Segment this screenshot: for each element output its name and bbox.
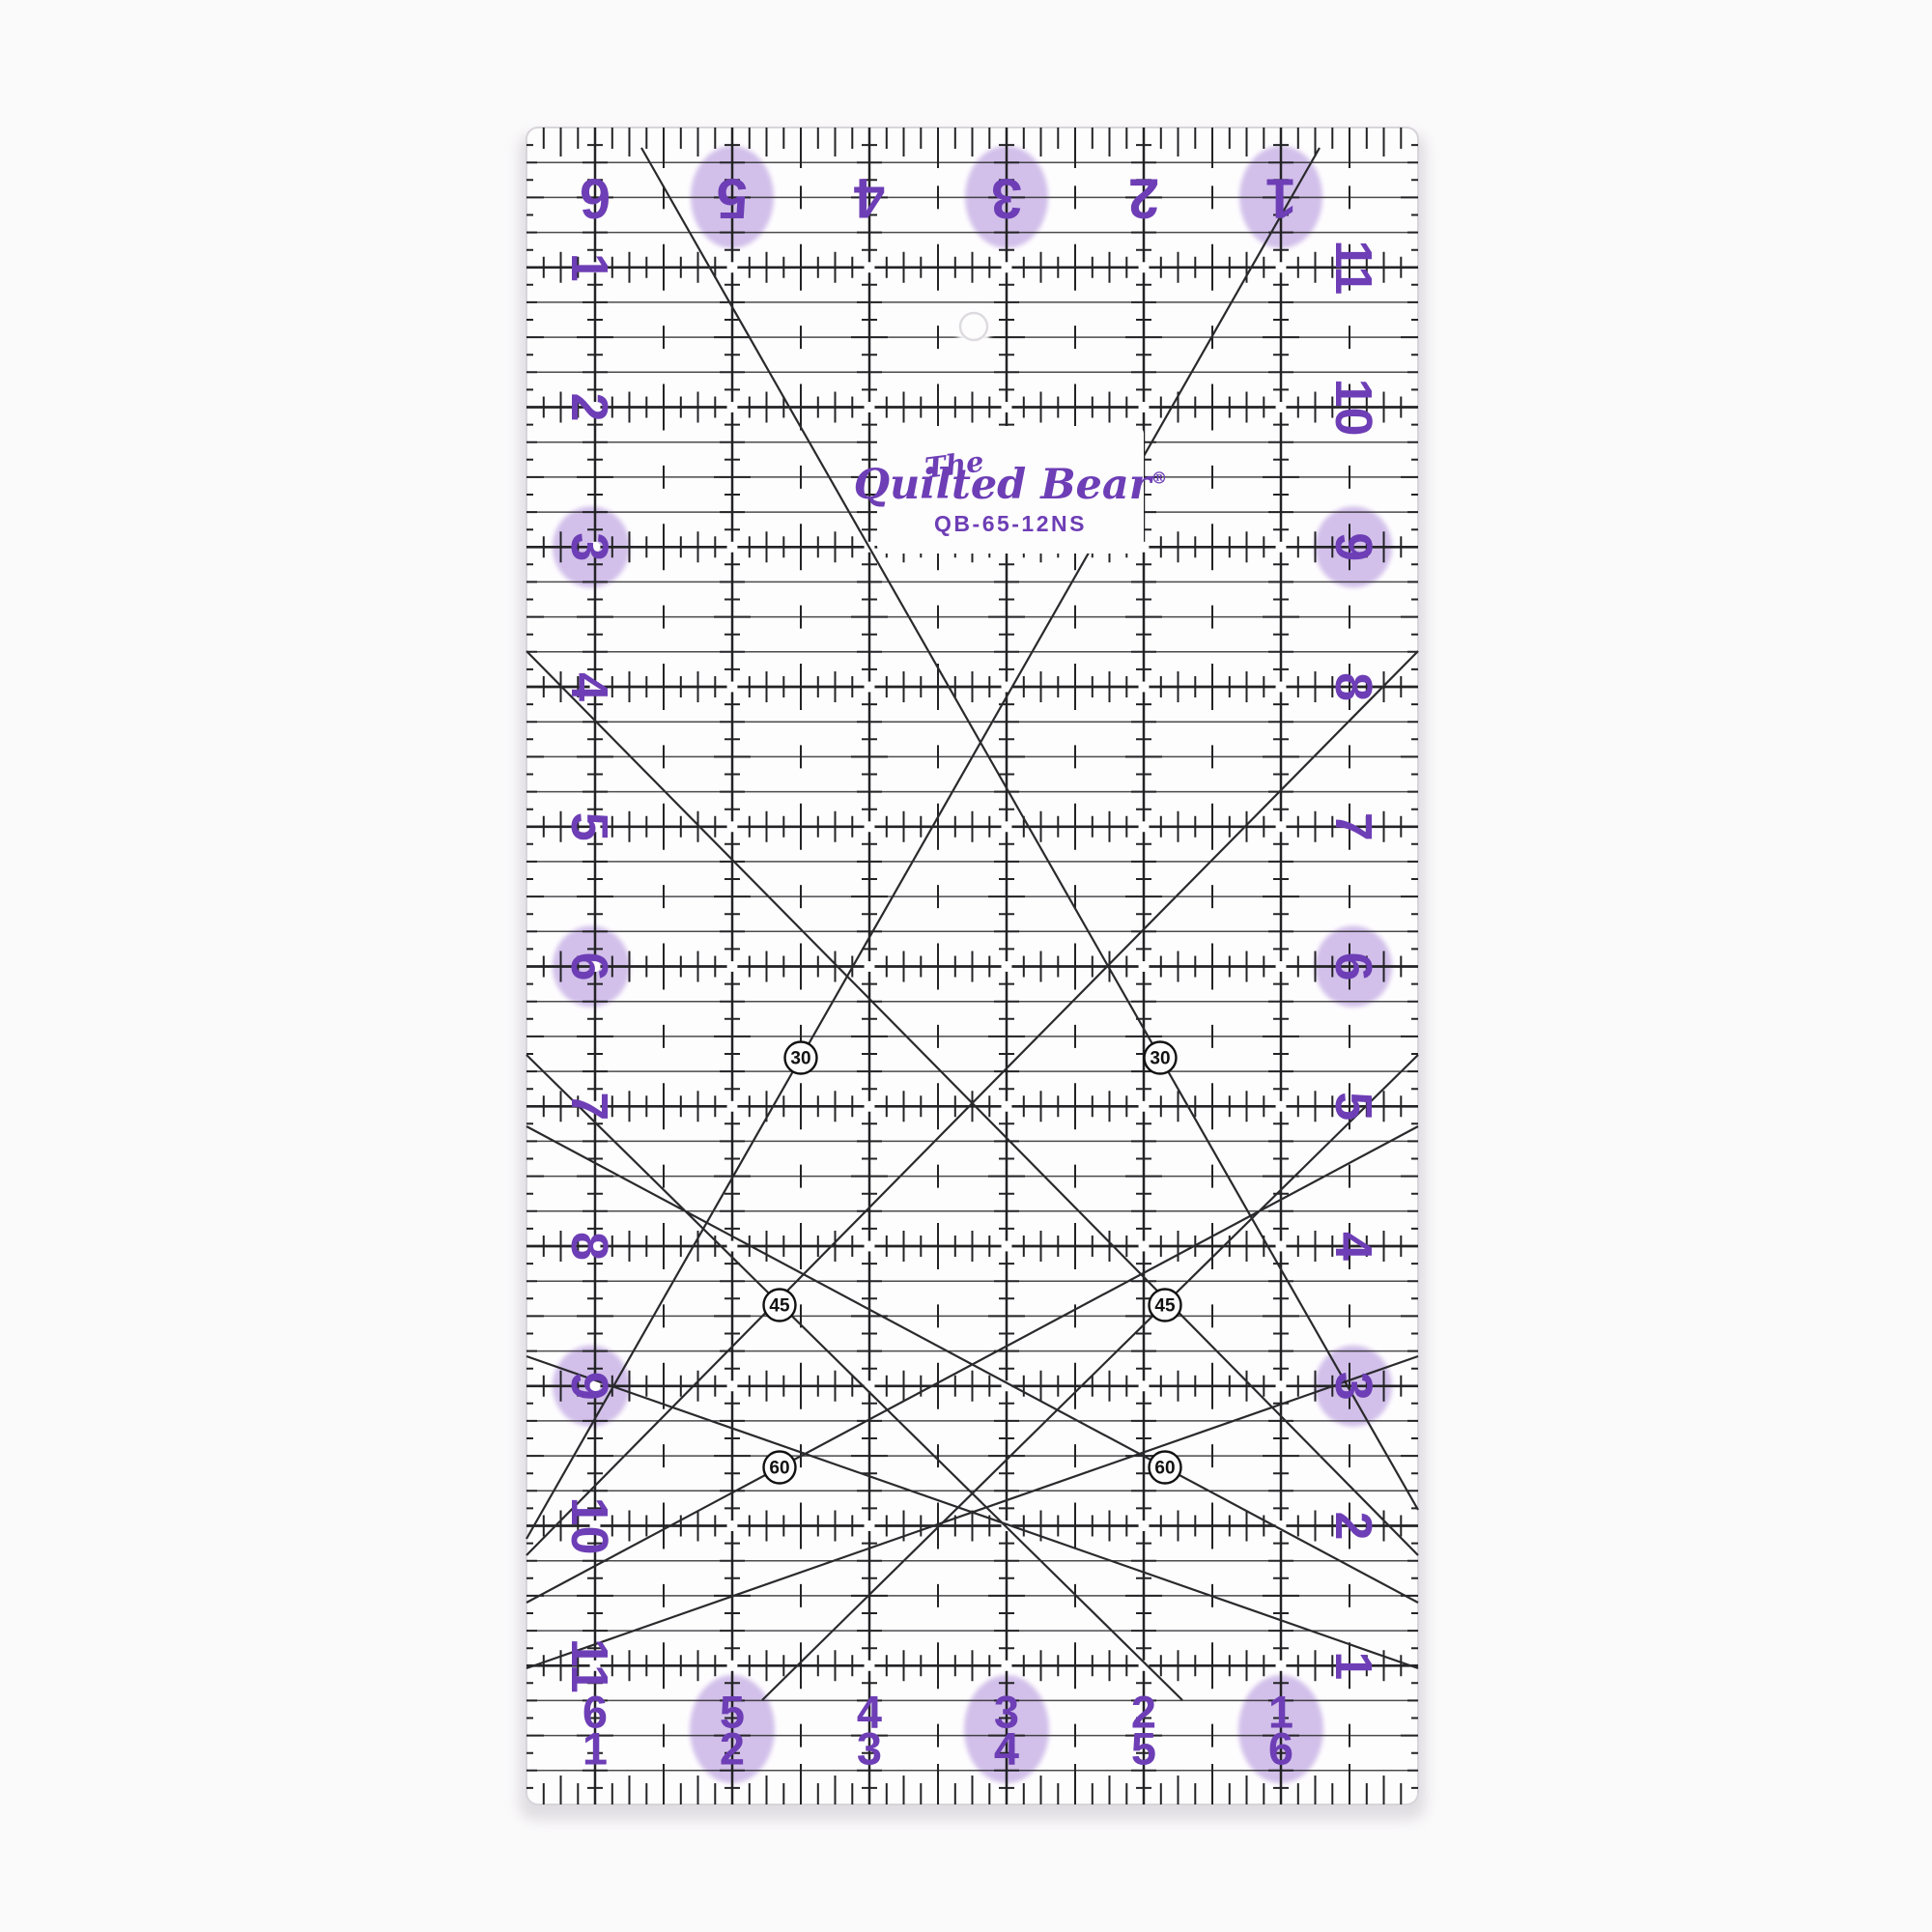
- bottom-scale-number-bottom: 4: [994, 1723, 1019, 1775]
- top-scale-number: 5: [717, 167, 748, 230]
- bottom-scale-number-bottom: 1: [582, 1723, 608, 1775]
- top-scale-number: 3: [991, 167, 1022, 230]
- left-scale-number: 1: [560, 253, 618, 282]
- top-scale-number: 2: [1128, 167, 1159, 230]
- top-scale-number: 4: [854, 167, 885, 230]
- ruler-hole: [954, 307, 993, 346]
- right-scale-number: 3: [1324, 1372, 1382, 1401]
- brand-model: QB-65-12NS: [934, 513, 1087, 535]
- right-scale-number: 4: [1324, 1232, 1382, 1261]
- quilting-ruler: 6543211234567891011111098765432161524334…: [0, 0, 1932, 1932]
- bottom-scale-number-bottom: 5: [1131, 1723, 1156, 1775]
- left-scale-number: 8: [560, 1232, 618, 1261]
- left-scale-number: 11: [560, 1638, 618, 1693]
- angle-marker-label: 45: [1154, 1296, 1176, 1317]
- angle-marker-label: 45: [769, 1296, 790, 1317]
- right-scale-number: 5: [1324, 1092, 1382, 1121]
- right-scale-number: 6: [1324, 952, 1382, 980]
- right-scale-number: 11: [1324, 240, 1382, 295]
- bottom-scale-number-bottom: 3: [857, 1723, 882, 1775]
- angle-marker-label: 30: [790, 1049, 810, 1069]
- right-scale-number: 1: [1324, 1651, 1382, 1680]
- right-scale-number: 7: [1324, 812, 1382, 841]
- bottom-scale-number-bottom: 6: [1268, 1723, 1293, 1775]
- brand-name-text: Quilted Bear: [854, 461, 1151, 509]
- angle-marker-label: 60: [769, 1459, 789, 1479]
- right-scale-number: 9: [1324, 532, 1382, 561]
- brand-name: Quilted Bear®: [854, 465, 1168, 506]
- left-scale-number: 3: [560, 532, 618, 561]
- right-scale-number: 10: [1324, 378, 1382, 436]
- angle-marker-label: 30: [1150, 1049, 1170, 1069]
- left-scale-number: 5: [560, 812, 618, 841]
- bottom-scale-number-bottom: 2: [720, 1723, 745, 1775]
- top-scale-number: 1: [1265, 167, 1296, 230]
- ruler-product-photo: 6543211234567891011111098765432161524334…: [0, 0, 1932, 1932]
- left-scale-number: 7: [560, 1092, 618, 1121]
- brand-logo: The Quilted Bear® QB-65-12NS: [877, 426, 1144, 554]
- left-scale-number: 2: [560, 392, 618, 421]
- right-scale-number: 8: [1324, 672, 1382, 701]
- brand-the: The: [923, 447, 985, 482]
- left-scale-number: 4: [560, 672, 618, 701]
- right-scale-number: 2: [1324, 1511, 1382, 1540]
- left-scale-number: 6: [560, 952, 618, 980]
- left-scale-number: 9: [560, 1372, 618, 1401]
- left-scale-number: 10: [560, 1496, 618, 1554]
- registered-mark-icon: ®: [1151, 469, 1167, 489]
- angle-marker-label: 60: [1154, 1459, 1175, 1479]
- top-scale-number: 6: [580, 167, 611, 230]
